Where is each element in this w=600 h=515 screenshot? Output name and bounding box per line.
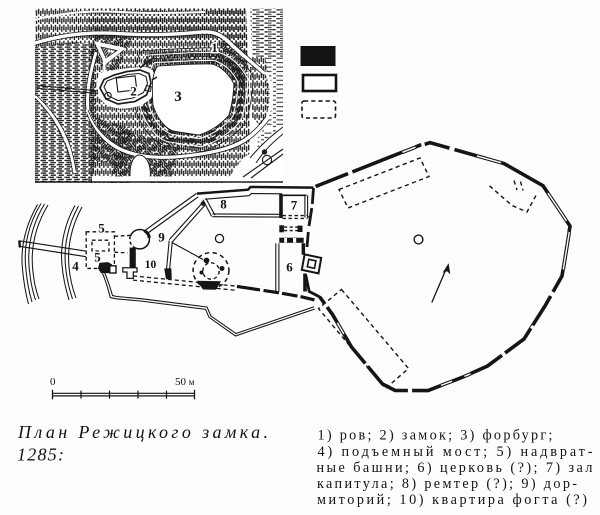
svg-text:6: 6 xyxy=(286,260,293,275)
svg-text:7: 7 xyxy=(291,198,298,213)
svg-text:5: 5 xyxy=(94,250,101,265)
svg-text:ные башни; 6) церковь (?); 7): ные башни; 6) церковь (?); 7) зал xyxy=(317,460,593,476)
svg-text:10: 10 xyxy=(145,259,157,271)
svg-text:0: 0 xyxy=(50,376,56,388)
svg-text:50 м: 50 м xyxy=(175,376,195,388)
svg-text:миторий; 10) квартира фогта (?: миторий; 10) квартира фогта (?) xyxy=(317,492,587,508)
svg-text:9: 9 xyxy=(158,230,165,245)
svg-text:2: 2 xyxy=(130,84,137,99)
svg-text:4: 4 xyxy=(72,259,79,274)
svg-text:5: 5 xyxy=(98,221,105,236)
svg-text:1: 1 xyxy=(211,40,218,55)
svg-text:капитула; 8) ремтер (?); 9) до: капитула; 8) ремтер (?); 9) дор- xyxy=(317,476,577,492)
svg-text:8: 8 xyxy=(220,197,227,212)
svg-text:3: 3 xyxy=(174,89,182,105)
svg-text:1) ров; 2) замок; 3) форбург;: 1) ров; 2) замок; 3) форбург; xyxy=(318,428,553,444)
svg-text:План Режицкого замка.: План Режицкого замка. xyxy=(17,422,268,442)
